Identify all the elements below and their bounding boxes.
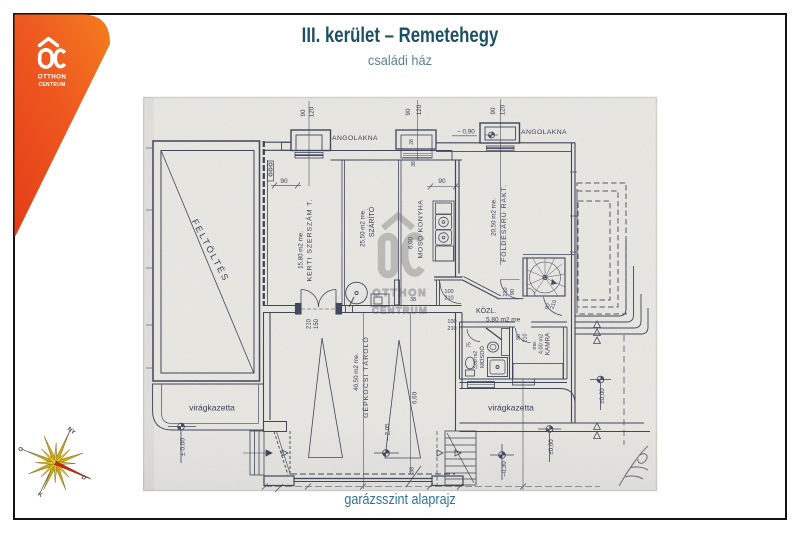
svg-text:–0,30: –0,30 <box>501 461 508 477</box>
svg-text:100: 100 <box>447 319 456 325</box>
svg-text:virágkazetta: virágkazetta <box>488 403 534 413</box>
svg-text:90: 90 <box>280 178 288 185</box>
svg-text:25,50 m2 me.: 25,50 m2 me. <box>360 209 367 247</box>
svg-text:38: 38 <box>410 467 416 473</box>
svg-text:120: 120 <box>416 104 423 115</box>
svg-text:MOSDÓ: MOSDÓ <box>479 346 486 368</box>
svg-text:OTTHON: OTTHON <box>38 74 67 81</box>
svg-text:210: 210 <box>307 318 313 329</box>
svg-text:± 0,00: ± 0,00 <box>180 438 187 456</box>
svg-text:15,80 m2 me.: 15,80 m2 me. <box>298 231 305 269</box>
svg-text:±0,00: ±0,00 <box>548 439 555 455</box>
svg-text:FÖLDESÁRÚ RAKT.: FÖLDESÁRÚ RAKT. <box>499 184 508 262</box>
svg-text:virágkazetta: virágkazetta <box>189 403 235 413</box>
svg-text:GÉPKOCSI TÁROLÓ: GÉPKOCSI TÁROLÓ <box>361 336 370 418</box>
svg-text:6,60: 6,60 <box>412 391 419 404</box>
svg-text:4,00 m2: 4,00 m2 <box>539 334 545 354</box>
svg-text:ANGOLAKNA: ANGOLAKNA <box>521 129 567 136</box>
svg-text:KAMRA: KAMRA <box>545 332 552 355</box>
svg-text:100: 100 <box>444 289 453 295</box>
svg-text:– 2,05: – 2,05 <box>385 423 392 441</box>
svg-text:D: D <box>80 475 87 482</box>
svg-text:20,50 m2 me.: 20,50 m2 me. <box>491 198 498 236</box>
svg-text:ANGOLAKNA: ANGOLAKNA <box>332 135 378 142</box>
svg-text:120: 120 <box>500 104 507 115</box>
svg-text:210: 210 <box>503 287 509 296</box>
svg-text:K: K <box>36 492 44 500</box>
svg-text:210: 210 <box>444 296 453 302</box>
svg-text:MOSÓ KONYHA: MOSÓ KONYHA <box>416 199 425 258</box>
svg-text:90: 90 <box>300 109 307 116</box>
svg-text:40,50 m2 me.: 40,50 m2 me. <box>353 353 360 391</box>
svg-text:90: 90 <box>490 107 497 114</box>
svg-text:75: 75 <box>467 342 473 348</box>
svg-text:CENTRUM: CENTRUM <box>38 82 65 88</box>
svg-text:me.: me. <box>532 340 538 350</box>
svg-text:SZÁRÍTÓ: SZÁRÍTÓ <box>367 206 376 237</box>
svg-text:90: 90 <box>510 289 516 295</box>
svg-text:90: 90 <box>516 334 522 340</box>
svg-text:KERTI SZERSZÁM T.: KERTI SZERSZÁM T. <box>305 199 314 282</box>
svg-text:38: 38 <box>411 161 417 167</box>
svg-text:KÖZL.: KÖZL. <box>476 307 496 315</box>
svg-text:90: 90 <box>438 178 446 185</box>
svg-text:150: 150 <box>314 318 320 329</box>
svg-text:– 0,90: – 0,90 <box>457 129 475 136</box>
svg-text:210: 210 <box>447 326 456 332</box>
svg-text:OTTHON: OTTHON <box>372 287 427 299</box>
svg-text:3,00 m2: 3,00 m2 <box>473 351 479 369</box>
svg-text:28: 28 <box>409 139 415 145</box>
svg-text:90: 90 <box>405 108 412 115</box>
svg-text:120: 120 <box>309 106 316 117</box>
svg-text:210: 210 <box>523 334 529 343</box>
svg-text:NY: NY <box>66 426 76 436</box>
svg-text:±0,00: ±0,00 <box>599 388 606 404</box>
svg-text:CENTRUM: CENTRUM <box>372 306 428 317</box>
